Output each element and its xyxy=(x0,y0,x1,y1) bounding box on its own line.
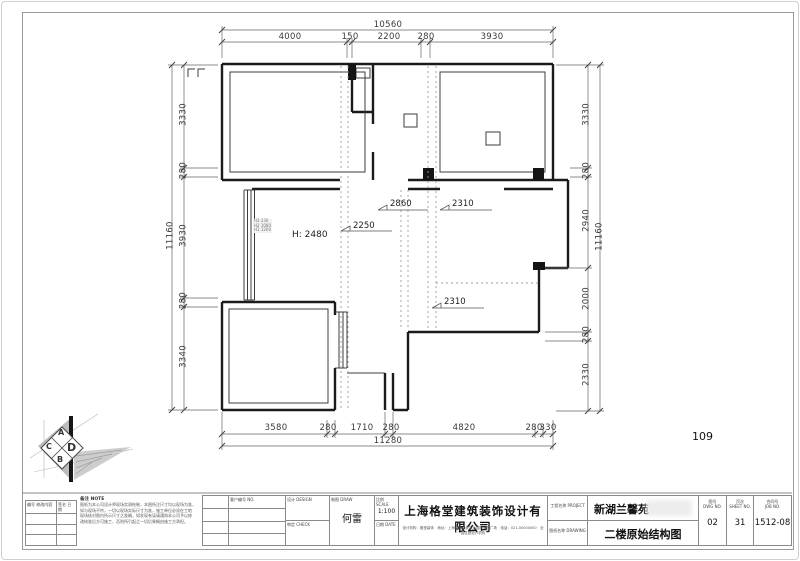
logo-letter-b: B xyxy=(57,455,63,464)
check-cell: 审定 CHECK xyxy=(285,520,330,546)
client-number-label: 客户编号 NO. xyxy=(229,496,285,508)
revision-col2-header: 签名 日期 xyxy=(56,501,76,513)
dim-left-4: 280 xyxy=(180,276,189,326)
dim-left-1: 3330 xyxy=(180,90,189,140)
dim-left-2: 280 xyxy=(180,146,189,196)
sheet-no-sublabel: SHEET NO. xyxy=(727,504,753,509)
drawing-title-cell: 二楼原始结构图 xyxy=(587,520,699,546)
scale-value: 1:100 xyxy=(375,508,398,515)
dim-right-1: 3330 xyxy=(583,90,592,140)
drawing-label-cell: 图纸名称 DRAWING xyxy=(547,520,588,546)
design-label: 设计 DESIGN xyxy=(286,496,329,503)
sheet-note-109: 109 xyxy=(692,430,713,443)
job-no-sublabel: JOB NO. xyxy=(754,504,791,509)
dim-top-overall: 10560 xyxy=(358,21,418,30)
dim-right-overall: 11160 xyxy=(596,212,605,262)
dim-right-6: 2330 xyxy=(583,350,592,400)
draw-value: 何雷 xyxy=(330,510,374,525)
project-label-cell: 工程名称 PROJECT xyxy=(547,495,588,521)
scale-cell: 比例 SCALE 1:100 xyxy=(374,495,399,521)
dim-bottom-overall: 11280 xyxy=(358,437,418,446)
floorplan-sheet: A C D B 10560 4000 150 2200 280 3930 333… xyxy=(0,0,800,561)
dim-bottom-4: 280 xyxy=(373,424,409,433)
dim-2860: 2860 xyxy=(390,199,412,209)
project-name-redaction xyxy=(646,500,692,516)
check-label: 审定 CHECK xyxy=(286,521,329,528)
room-height-label: H: 2480 xyxy=(292,230,328,240)
notes-line-4: 改核准后方可施工，否则所引起之一切后果概由施工方承担。 xyxy=(80,519,198,525)
blank-rows-table xyxy=(202,495,229,546)
draw-cell: 制图 DRAW 何雷 xyxy=(329,495,375,546)
logo-letter-c: C xyxy=(46,442,52,451)
company-subline: 设计机构：格堂装饰 地址：上海市红星美凯龙国际家居广场 电话：021-00000… xyxy=(401,526,545,536)
dwg-no-cell: 图号 DWG NO. 02 xyxy=(698,495,727,546)
dim-bottom-1: 3580 xyxy=(246,424,306,433)
drawing-title: 二楼原始结构图 xyxy=(588,526,698,542)
dim-top-1: 4000 xyxy=(260,33,320,42)
design-cell: 设计 DESIGN xyxy=(285,495,330,521)
date-cell: 日期 DATE xyxy=(374,520,399,546)
dim-left-5: 3340 xyxy=(180,332,189,382)
logo-letter-d: D xyxy=(67,441,76,454)
notes-block: 备注 NOTE 图纸为本公司设计师现场实测绘制，本图所注尺寸均以现场为准， 如与… xyxy=(80,496,198,546)
project-name-cell: 新湖兰馨苑 xyxy=(587,495,699,521)
dwg-no-sublabel: DWG NO. xyxy=(699,504,726,509)
scale-label: 比例 SCALE xyxy=(375,496,398,508)
job-no-cell: 合同号 JOB NO. 1512-08 xyxy=(753,495,792,546)
client-number-cell: 客户编号 NO. xyxy=(228,495,286,546)
dim-right-3: 2940 xyxy=(583,196,592,246)
dim-left-overall: 11160 xyxy=(167,211,176,261)
date-label: 日期 DATE xyxy=(375,521,398,528)
window-note-line3: H1 1200 xyxy=(254,227,271,232)
job-no-value: 1512-08 xyxy=(754,518,791,528)
dim-2310-bottom: 2310 xyxy=(444,297,466,307)
dim-bottom-5: 4820 xyxy=(436,424,492,433)
sheet-no-cell: 页次 SHEET NO. 31 xyxy=(726,495,754,546)
dim-2310-top: 2310 xyxy=(452,199,474,209)
dim-top-4: 280 xyxy=(406,33,446,42)
revision-table: 编号 修改内容 签名 日期 xyxy=(25,500,77,546)
dwg-no-value: 02 xyxy=(699,518,726,528)
sheet-no-value: 31 xyxy=(727,518,753,528)
draw-label: 制图 DRAW xyxy=(330,496,374,503)
dim-right-2: 280 xyxy=(583,146,592,196)
revision-col1-header: 编号 修改内容 xyxy=(26,501,56,513)
drawing-label: 图纸名称 DRAWING xyxy=(548,528,587,533)
dim-left-3: 3930 xyxy=(180,211,189,261)
floorplan-linework xyxy=(0,0,800,561)
project-label: 工程名称 PROJECT xyxy=(548,503,587,508)
dim-bottom-2: 280 xyxy=(313,424,343,433)
window-height-note: H3 230 H2 1080 H1 1200 xyxy=(253,219,272,233)
company-cell: 上海格堂建筑装饰设计有限公司 设计机构：格堂装饰 地址：上海市红星美凯龙国际家居… xyxy=(398,495,548,546)
notes-line-1: 图纸为本公司设计师现场实测绘制，本图所注尺寸均以现场为准， xyxy=(80,502,198,508)
logo-letter-a: A xyxy=(58,428,64,437)
dim-top-5: 3930 xyxy=(462,33,522,42)
dim-bottom-7: 330 xyxy=(533,424,563,433)
dim-2250: 2250 xyxy=(353,221,375,231)
notes-line-3: 现场核对图内所示尺寸之准确，如发现有误请通知本公司予以修 xyxy=(80,513,198,519)
